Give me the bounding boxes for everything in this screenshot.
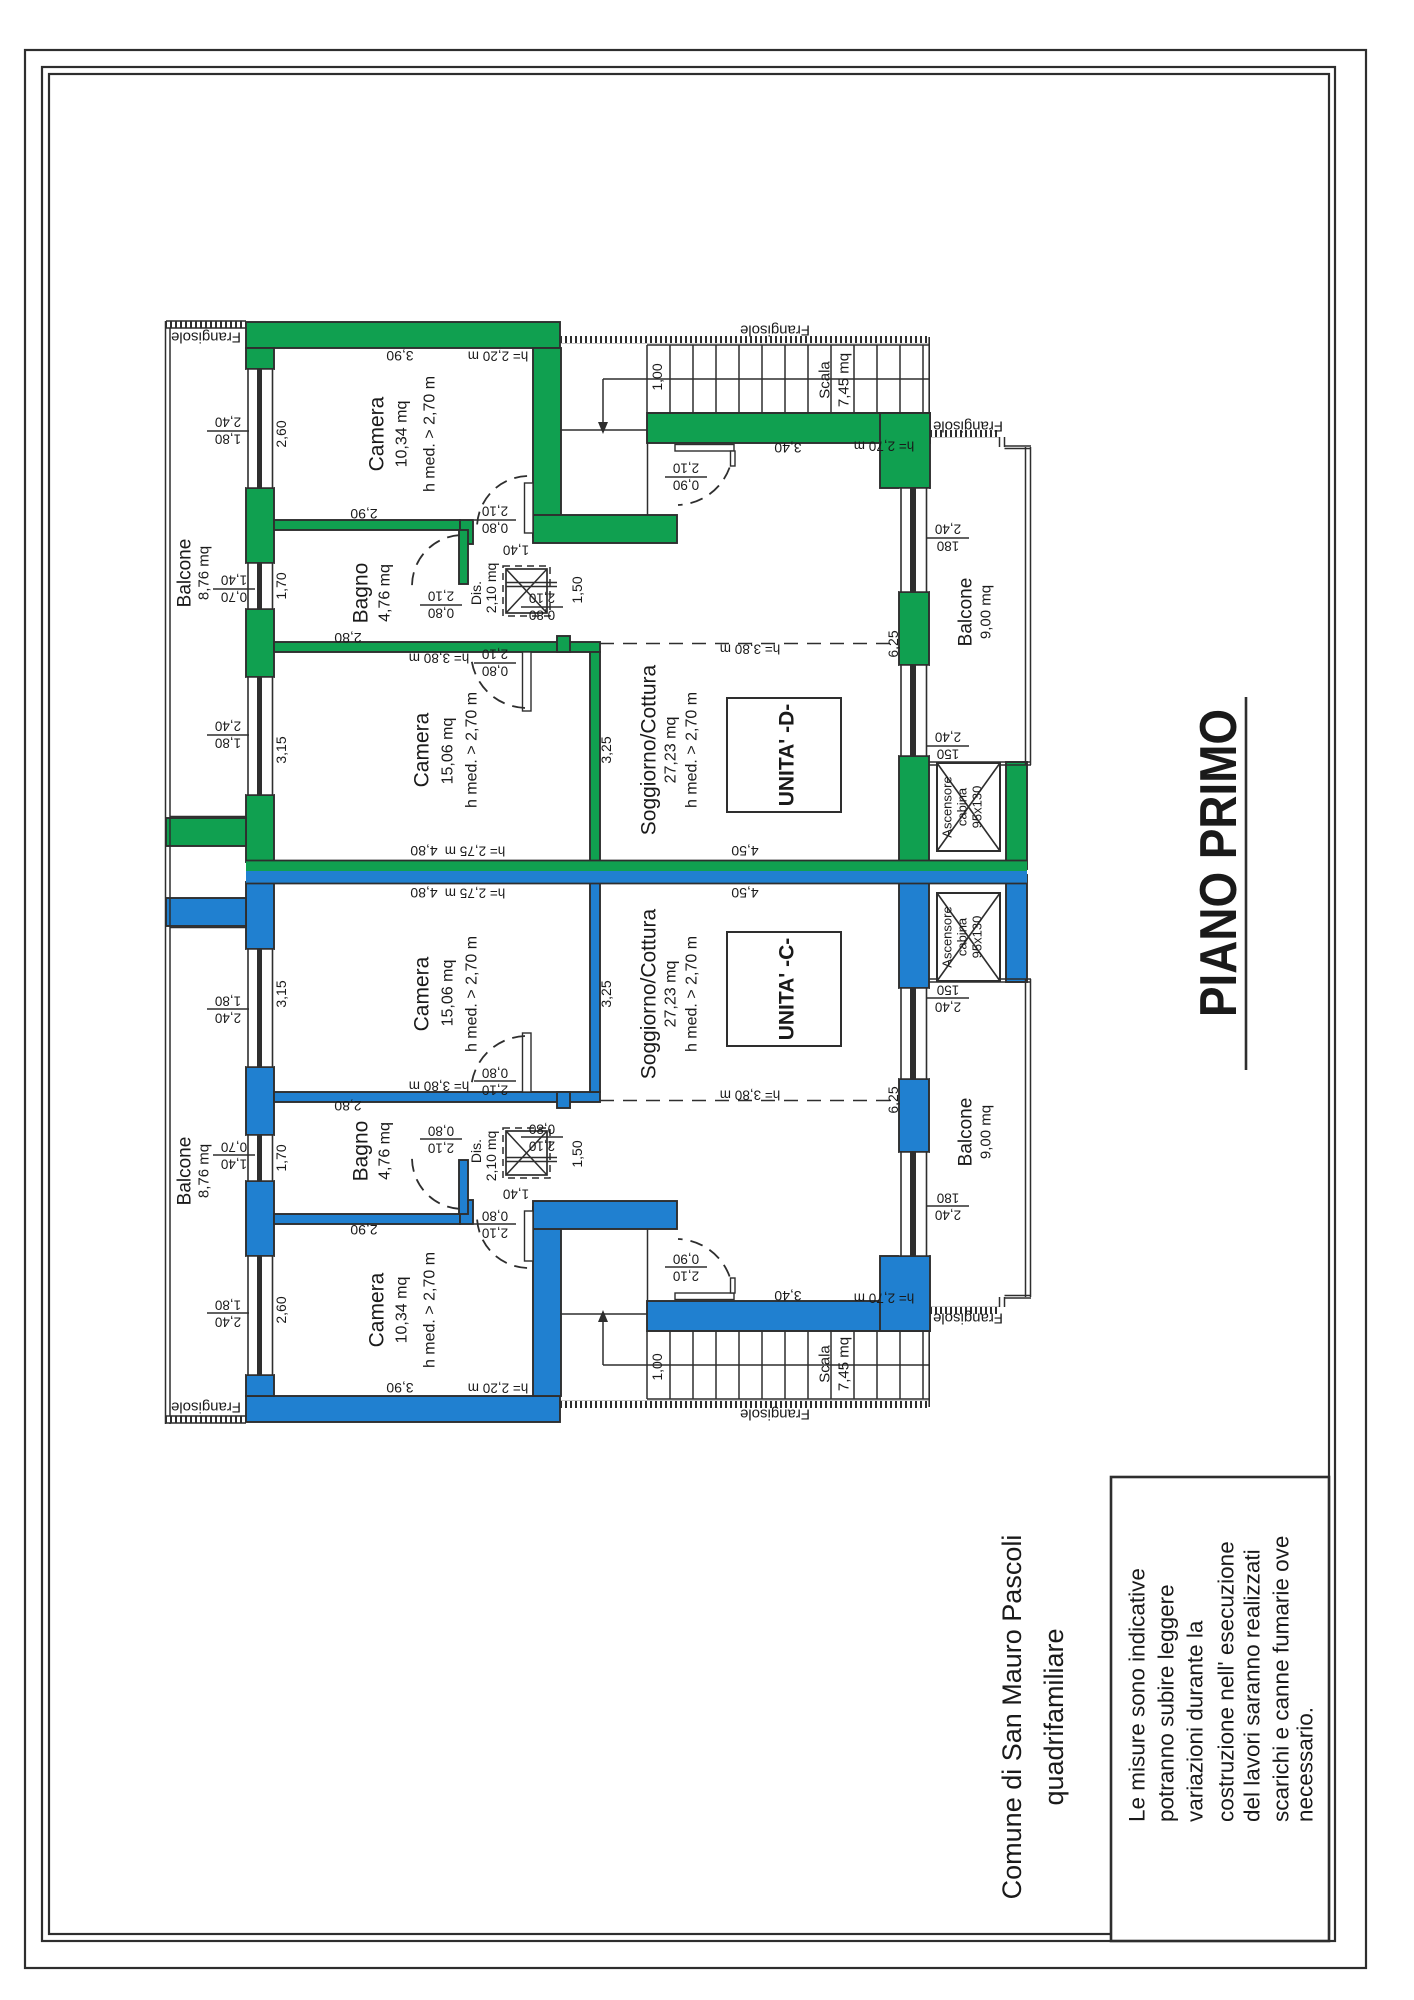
svg-text:2,90: 2,90	[350, 1222, 377, 1238]
svg-text:95x130: 95x130	[970, 916, 985, 959]
svg-text:4,80: 4,80	[410, 843, 437, 859]
svg-text:h= 2,70 m: h= 2,70 m	[854, 439, 914, 454]
svg-text:2,10: 2,10	[529, 1139, 555, 1154]
svg-text:UNITA' -D-: UNITA' -D-	[776, 704, 799, 807]
svg-text:h= 2,70 m: h= 2,70 m	[854, 1291, 914, 1306]
svg-text:1,50: 1,50	[569, 576, 585, 603]
svg-text:Scala: Scala	[817, 361, 834, 399]
svg-text:h= 2,75 m: h= 2,75 m	[445, 844, 505, 859]
svg-text:UNITA' -C-: UNITA' -C-	[776, 938, 799, 1041]
svg-text:3,15: 3,15	[273, 980, 289, 1007]
svg-text:h med. > 2,70 m: h med. > 2,70 m	[422, 1252, 439, 1368]
svg-text:1,40: 1,40	[503, 1187, 529, 1202]
svg-text:cabina: cabina	[955, 787, 970, 826]
svg-text:necessario.: necessario.	[1293, 1707, 1318, 1822]
svg-text:4,76 mq: 4,76 mq	[377, 564, 394, 622]
svg-text:Le misure sono indicative: Le misure sono indicative	[1125, 1568, 1150, 1822]
svg-text:10,34 mq: 10,34 mq	[394, 401, 411, 468]
svg-text:Comune di San Mauro Pascoli: Comune di San Mauro Pascoli	[997, 1535, 1027, 1900]
svg-text:Frangisole: Frangisole	[933, 418, 1003, 435]
svg-text:h= 3,80 m: h= 3,80 m	[409, 651, 469, 666]
svg-text:2,60: 2,60	[273, 420, 289, 447]
svg-text:Frangisole: Frangisole	[171, 1399, 241, 1416]
svg-text:h= 2,20 m: h= 2,20 m	[468, 1381, 528, 1396]
svg-text:2,40: 2,40	[935, 1000, 961, 1015]
svg-text:Soggiorno/Cottura: Soggiorno/Cottura	[638, 664, 661, 835]
svg-text:Balcone: Balcone	[175, 1137, 196, 1206]
svg-text:2,10: 2,10	[673, 461, 699, 476]
svg-text:0,80: 0,80	[428, 1124, 454, 1139]
svg-text:0,80: 0,80	[529, 608, 555, 623]
svg-text:Balcone: Balcone	[175, 539, 196, 608]
svg-text:15,06 mq: 15,06 mq	[440, 718, 457, 785]
svg-text:Camera: Camera	[411, 956, 434, 1031]
svg-text:Dis.: Dis.	[468, 1139, 484, 1163]
svg-text:0,70: 0,70	[221, 590, 247, 605]
svg-text:Dis.: Dis.	[468, 581, 484, 605]
svg-text:150: 150	[937, 983, 960, 998]
svg-text:Frangisole: Frangisole	[171, 329, 241, 346]
svg-text:Bagno: Bagno	[350, 1121, 373, 1182]
svg-text:9,00 mq: 9,00 mq	[978, 1105, 995, 1159]
svg-text:2,10: 2,10	[482, 504, 508, 519]
svg-text:4,50: 4,50	[731, 843, 758, 859]
svg-text:1,50: 1,50	[569, 1140, 585, 1167]
svg-text:6,25: 6,25	[885, 1086, 901, 1113]
svg-text:0,80: 0,80	[482, 664, 508, 679]
svg-text:15,06 mq: 15,06 mq	[440, 960, 457, 1027]
svg-text:2,10: 2,10	[482, 1226, 508, 1241]
svg-text:Frangisole: Frangisole	[740, 322, 810, 339]
svg-text:1,80: 1,80	[215, 432, 241, 447]
svg-text:2,90: 2,90	[350, 506, 377, 522]
svg-text:180: 180	[937, 1191, 960, 1206]
svg-text:2,10 mq: 2,10 mq	[483, 1131, 499, 1182]
svg-text:1,80: 1,80	[215, 736, 241, 751]
svg-text:Balcone: Balcone	[956, 578, 977, 647]
svg-text:3,90: 3,90	[386, 348, 413, 364]
svg-text:0,80: 0,80	[529, 1122, 555, 1137]
svg-text:variazioni durante la: variazioni durante la	[1183, 1620, 1208, 1822]
svg-text:h= 2,20 m: h= 2,20 m	[468, 349, 528, 364]
svg-text:2,80: 2,80	[334, 630, 361, 646]
svg-text:h med. > 2,70 m: h med. > 2,70 m	[684, 692, 701, 808]
svg-text:h med. > 2,70 m: h med. > 2,70 m	[422, 376, 439, 492]
svg-text:h med. > 2,70 m: h med. > 2,70 m	[464, 692, 481, 808]
svg-text:1,00: 1,00	[649, 363, 665, 390]
svg-text:Balcone: Balcone	[956, 1098, 977, 1167]
svg-text:scarichi e canne fumarie ove: scarichi e canne fumarie ove	[1269, 1536, 1294, 1822]
svg-text:3,90: 3,90	[386, 1380, 413, 1396]
svg-text:6,25: 6,25	[885, 630, 901, 657]
svg-text:1,40: 1,40	[221, 1157, 247, 1172]
svg-text:h= 3,80 m: h= 3,80 m	[720, 1088, 780, 1103]
svg-text:4,80: 4,80	[410, 885, 437, 901]
svg-text:3,25: 3,25	[598, 980, 614, 1007]
svg-text:2,40: 2,40	[935, 730, 961, 745]
svg-text:2,10: 2,10	[482, 647, 508, 662]
svg-text:1,00: 1,00	[649, 1353, 665, 1380]
svg-text:95x130: 95x130	[970, 786, 985, 829]
svg-text:1,70: 1,70	[273, 572, 289, 599]
svg-text:150: 150	[937, 747, 960, 762]
svg-text:h= 2,75 m: h= 2,75 m	[445, 886, 505, 901]
svg-text:h= 3,80 m: h= 3,80 m	[720, 642, 780, 657]
svg-text:4,76 mq: 4,76 mq	[377, 1122, 394, 1180]
svg-text:10,34 mq: 10,34 mq	[394, 1277, 411, 1344]
svg-text:2,40: 2,40	[215, 1315, 241, 1330]
svg-text:2,10: 2,10	[482, 1083, 508, 1098]
svg-text:1,40: 1,40	[503, 543, 529, 558]
svg-text:27,23 mq: 27,23 mq	[663, 717, 680, 784]
svg-text:2,10: 2,10	[529, 591, 555, 606]
svg-text:h med. > 2,70 m: h med. > 2,70 m	[684, 936, 701, 1052]
svg-text:PIANO PRIMO: PIANO PRIMO	[1190, 709, 1248, 1017]
svg-text:Camera: Camera	[411, 712, 434, 787]
svg-text:costruzione nell' esecuzione: costruzione nell' esecuzione	[1214, 1541, 1239, 1822]
svg-text:8,76 mq: 8,76 mq	[196, 1144, 213, 1198]
svg-text:180: 180	[937, 539, 960, 554]
svg-text:Frangisole: Frangisole	[933, 1310, 1003, 1327]
svg-text:quadrifamiliare: quadrifamiliare	[1039, 1628, 1069, 1805]
svg-text:2,40: 2,40	[215, 1011, 241, 1026]
svg-text:1,80: 1,80	[215, 1298, 241, 1313]
svg-text:cabina: cabina	[955, 917, 970, 956]
svg-text:2,10 mq: 2,10 mq	[483, 563, 499, 614]
svg-text:0,90: 0,90	[673, 1252, 699, 1267]
svg-text:Frangisole: Frangisole	[740, 1406, 810, 1423]
svg-text:0,90: 0,90	[673, 478, 699, 493]
svg-text:7,45 mq: 7,45 mq	[836, 353, 853, 407]
svg-text:del lavori saranno realizzati: del lavori saranno realizzati	[1240, 1549, 1265, 1822]
svg-text:3,25: 3,25	[598, 736, 614, 763]
svg-text:2,10: 2,10	[673, 1269, 699, 1284]
svg-text:3,40: 3,40	[774, 440, 801, 456]
svg-text:2,40: 2,40	[935, 1208, 961, 1223]
svg-text:3,15: 3,15	[273, 736, 289, 763]
svg-text:Scala: Scala	[817, 1345, 834, 1383]
svg-text:h= 3,80 m: h= 3,80 m	[409, 1079, 469, 1094]
svg-text:2,60: 2,60	[273, 1296, 289, 1323]
svg-text:potranno subire leggere: potranno subire leggere	[1154, 1584, 1179, 1822]
svg-text:2,40: 2,40	[935, 522, 961, 537]
svg-text:0,80: 0,80	[482, 521, 508, 536]
svg-text:h med. > 2,70 m: h med. > 2,70 m	[464, 936, 481, 1052]
svg-text:2,40: 2,40	[215, 719, 241, 734]
svg-text:8,76 mq: 8,76 mq	[196, 546, 213, 600]
svg-text:3,40: 3,40	[774, 1288, 801, 1304]
svg-text:1,40: 1,40	[221, 573, 247, 588]
svg-text:1,80: 1,80	[215, 994, 241, 1009]
svg-text:Soggiorno/Cottura: Soggiorno/Cottura	[638, 908, 661, 1079]
svg-text:0,80: 0,80	[482, 1066, 508, 1081]
svg-text:2,10: 2,10	[428, 589, 454, 604]
svg-text:7,45 mq: 7,45 mq	[836, 1337, 853, 1391]
svg-text:27,23 mq: 27,23 mq	[663, 961, 680, 1028]
svg-text:9,00 mq: 9,00 mq	[978, 585, 995, 639]
svg-text:Camera: Camera	[366, 1272, 389, 1347]
svg-text:Ascensore: Ascensore	[940, 776, 955, 837]
svg-text:1,70: 1,70	[273, 1144, 289, 1171]
svg-text:2,10: 2,10	[428, 1141, 454, 1156]
svg-text:0,80: 0,80	[482, 1209, 508, 1224]
svg-text:4,50: 4,50	[731, 885, 758, 901]
svg-text:Ascensore: Ascensore	[940, 906, 955, 967]
svg-text:Bagno: Bagno	[350, 563, 373, 624]
svg-text:0,80: 0,80	[428, 606, 454, 621]
svg-text:2,80: 2,80	[334, 1098, 361, 1114]
svg-text:Camera: Camera	[366, 396, 389, 471]
svg-text:2,40: 2,40	[215, 415, 241, 430]
svg-text:0,70: 0,70	[221, 1140, 247, 1155]
